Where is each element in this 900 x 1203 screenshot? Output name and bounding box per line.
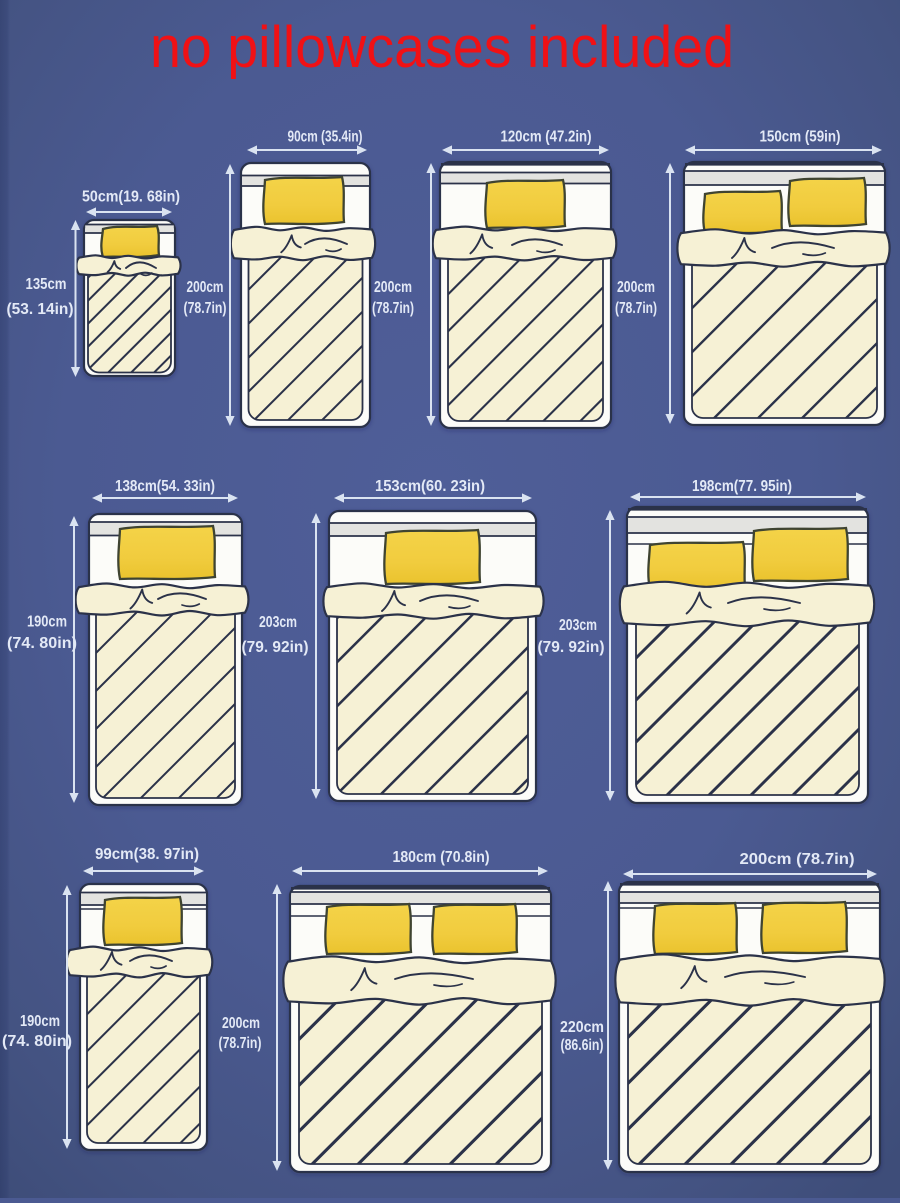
svg-text:(78.7in): (78.7in) (372, 300, 414, 317)
svg-text:(74. 80in): (74. 80in) (2, 1033, 72, 1050)
svg-text:(79. 92in): (79. 92in) (538, 639, 605, 656)
svg-text:200cm: 200cm (222, 1015, 260, 1032)
svg-text:120cm (47.2in): 120cm (47.2in) (501, 129, 592, 146)
svg-text:99cm(38. 97in): 99cm(38. 97in) (95, 846, 199, 863)
svg-text:200cm: 200cm (374, 279, 412, 296)
svg-text:(78.7in): (78.7in) (219, 1035, 262, 1052)
svg-text:138cm(54. 33in): 138cm(54. 33in) (115, 478, 215, 495)
svg-text:no pillowcases included: no pillowcases included (150, 15, 734, 80)
svg-text:(78.7in): (78.7in) (184, 300, 227, 317)
svg-text:220cm: 220cm (560, 1019, 604, 1036)
svg-text:(74. 80in): (74. 80in) (7, 635, 77, 652)
svg-text:198cm(77. 95in): 198cm(77. 95in) (692, 478, 792, 495)
svg-text:200cm: 200cm (187, 279, 224, 296)
svg-text:203cm: 203cm (259, 614, 297, 631)
svg-text:(79. 92in): (79. 92in) (242, 639, 309, 656)
svg-text:150cm (59in): 150cm (59in) (760, 129, 841, 146)
svg-text:50cm(19. 68in): 50cm(19. 68in) (82, 189, 180, 206)
svg-text:200cm (78.7in): 200cm (78.7in) (740, 851, 855, 868)
svg-text:153cm(60. 23in): 153cm(60. 23in) (375, 478, 485, 495)
svg-text:180cm (70.8in): 180cm (70.8in) (393, 849, 490, 866)
svg-text:135cm: 135cm (26, 276, 67, 293)
svg-text:(86.6in): (86.6in) (561, 1037, 604, 1054)
svg-text:90cm (35.4in): 90cm (35.4in) (288, 129, 363, 146)
svg-text:190cm: 190cm (27, 614, 67, 631)
svg-text:200cm: 200cm (617, 279, 655, 296)
svg-text:(53. 14in): (53. 14in) (7, 301, 74, 318)
svg-text:203cm: 203cm (559, 617, 597, 634)
svg-text:190cm: 190cm (20, 1013, 60, 1030)
svg-text:(78.7in): (78.7in) (615, 300, 657, 317)
